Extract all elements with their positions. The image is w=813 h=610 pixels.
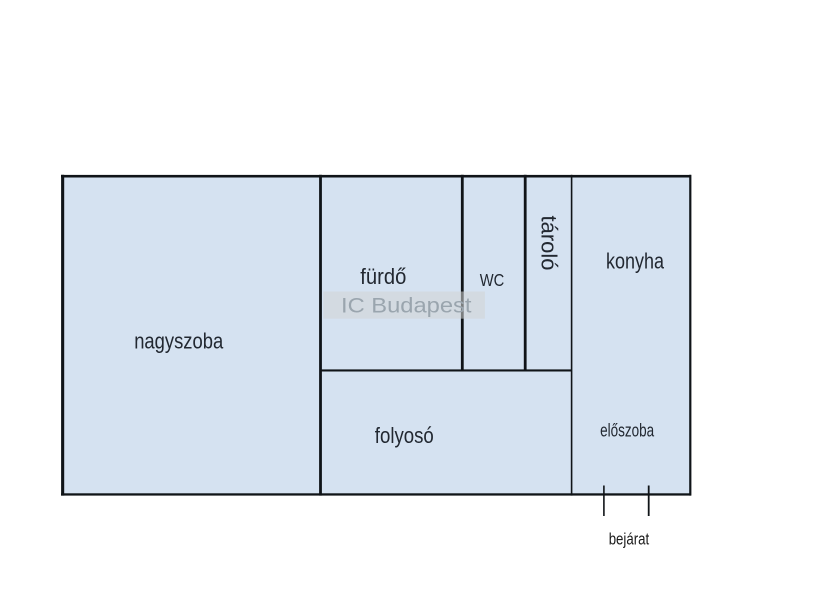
svg-text:előszoba: előszoba (600, 421, 655, 441)
svg-text:bejárat: bejárat (609, 531, 650, 549)
svg-text:konyha: konyha (606, 249, 665, 274)
svg-text:folyosó: folyosó (375, 423, 434, 448)
svg-text:fürdő: fürdő (360, 264, 406, 289)
svg-text:WC: WC (480, 270, 505, 290)
svg-text:nagyszoba: nagyszoba (134, 329, 224, 354)
svg-text:IC Budapest: IC Budapest (341, 293, 472, 317)
svg-text:tároló: tároló (537, 216, 562, 271)
